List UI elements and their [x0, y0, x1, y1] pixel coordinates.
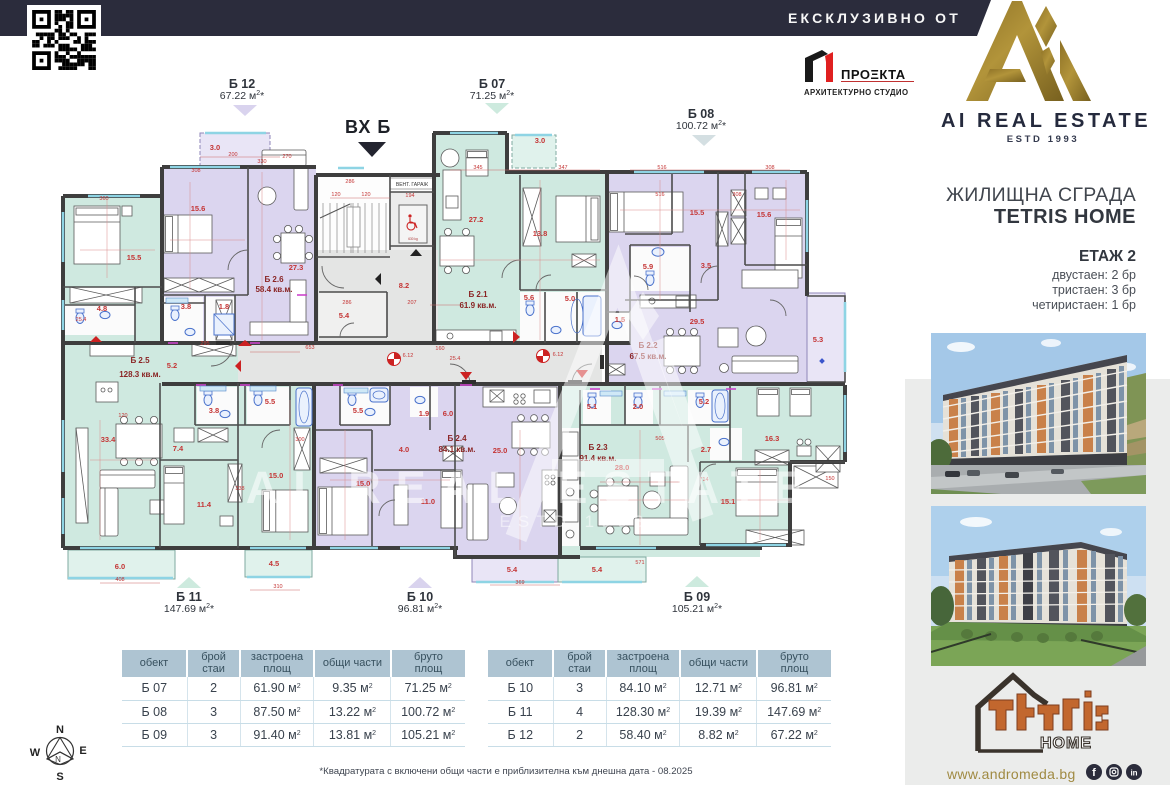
- svg-text:310: 310: [273, 584, 282, 590]
- svg-text:6.0: 6.0: [115, 562, 125, 571]
- svg-text:61.9 кв.м.: 61.9 кв.м.: [459, 301, 496, 310]
- svg-text:330: 330: [257, 159, 266, 165]
- svg-text:150: 150: [825, 476, 834, 482]
- svg-text:3.5: 3.5: [701, 261, 711, 270]
- svg-text:295: 295: [200, 341, 209, 347]
- svg-text:15.6: 15.6: [191, 204, 206, 213]
- svg-text:1.9: 1.9: [419, 409, 429, 418]
- svg-text:ESTD 1993: ESTD 1993: [500, 512, 651, 531]
- svg-text:4.8: 4.8: [97, 304, 107, 313]
- svg-text:5.5: 5.5: [353, 406, 363, 415]
- svg-text:300: 300: [295, 437, 304, 443]
- svg-text:HOME: HOME: [1040, 735, 1092, 752]
- svg-text:in: in: [1130, 769, 1137, 778]
- svg-text:5.4: 5.4: [507, 565, 518, 574]
- svg-text:15.5: 15.5: [690, 208, 705, 217]
- svg-text:84.1 кв.м.: 84.1 кв.м.: [438, 445, 475, 454]
- svg-text:630 kg: 630 kg: [408, 237, 418, 241]
- svg-text:7.4: 7.4: [173, 444, 184, 453]
- svg-text:286: 286: [342, 300, 351, 306]
- svg-text:5.2: 5.2: [699, 397, 709, 406]
- svg-text:270: 270: [282, 154, 291, 160]
- svg-text:120: 120: [361, 192, 370, 198]
- svg-text:308: 308: [191, 168, 200, 174]
- svg-text:408: 408: [115, 577, 124, 583]
- svg-text:286: 286: [345, 179, 354, 185]
- svg-text:120: 120: [118, 413, 127, 419]
- svg-text:5.9: 5.9: [643, 262, 653, 271]
- svg-text:f: f: [1092, 767, 1096, 779]
- svg-text:5.0: 5.0: [565, 294, 575, 303]
- svg-text:2.0: 2.0: [633, 402, 643, 411]
- svg-text:N: N: [56, 724, 64, 736]
- svg-text:ESTD 1993: ESTD 1993: [1007, 134, 1080, 145]
- svg-text:3.8: 3.8: [181, 302, 191, 311]
- svg-text:308: 308: [732, 192, 741, 198]
- svg-text:ПРОΞКТА: ПРОΞКТА: [841, 67, 906, 82]
- svg-text:207: 207: [407, 300, 416, 306]
- svg-text:Б 2.5: Б 2.5: [130, 356, 150, 365]
- svg-text:571: 571: [635, 560, 644, 566]
- svg-text:АРХИТЕКТУРНО СТУДИО: АРХИТЕКТУРНО СТУДИО: [804, 88, 908, 97]
- svg-text:W: W: [30, 747, 41, 759]
- svg-text:25.4: 25.4: [76, 317, 87, 323]
- svg-text:58.4 кв.м.: 58.4 кв.м.: [255, 285, 292, 294]
- svg-text:3.0: 3.0: [535, 136, 545, 145]
- svg-text:N: N: [55, 755, 61, 764]
- svg-text:120: 120: [331, 192, 340, 198]
- svg-text:27.3: 27.3: [289, 263, 304, 272]
- svg-text:3.0: 3.0: [210, 143, 220, 152]
- svg-text:1.8: 1.8: [219, 302, 229, 311]
- svg-text:AI REAL ESTATE: AI REAL ESTATE: [246, 462, 819, 513]
- svg-text:16.3: 16.3: [765, 434, 780, 443]
- svg-text:27.2: 27.2: [469, 215, 484, 224]
- svg-text:653: 653: [305, 345, 314, 351]
- svg-text:8.2: 8.2: [399, 281, 409, 290]
- svg-text:5.4: 5.4: [592, 565, 603, 574]
- svg-text:6.12: 6.12: [553, 352, 564, 358]
- svg-text:ВЕНТ. ГАРАЖ: ВЕНТ. ГАРАЖ: [396, 182, 429, 188]
- svg-text:AI REAL ESTATE: AI REAL ESTATE: [941, 110, 1151, 132]
- svg-text:6.12: 6.12: [403, 353, 414, 359]
- svg-text:25.0: 25.0: [493, 446, 508, 455]
- svg-text:5.3: 5.3: [813, 335, 823, 344]
- svg-text:S: S: [56, 771, 63, 783]
- svg-text:Б 2.1: Б 2.1: [468, 290, 488, 299]
- svg-text:E: E: [79, 745, 86, 757]
- svg-text:5.1: 5.1: [587, 402, 597, 411]
- svg-text:6.0: 6.0: [443, 409, 453, 418]
- svg-text:Б 2.3: Б 2.3: [588, 443, 608, 452]
- svg-text:194: 194: [405, 193, 414, 199]
- svg-text:25.4: 25.4: [450, 356, 461, 362]
- svg-text:4.0: 4.0: [399, 445, 409, 454]
- svg-text:5.5: 5.5: [265, 397, 275, 406]
- svg-text:160: 160: [435, 346, 444, 352]
- svg-text:Б 2.4: Б 2.4: [447, 434, 467, 443]
- svg-text:33.4: 33.4: [101, 435, 116, 444]
- svg-text:5.6: 5.6: [524, 293, 534, 302]
- svg-text:4.5: 4.5: [269, 559, 279, 568]
- svg-text:29.5: 29.5: [690, 317, 705, 326]
- svg-text:Б 2.6: Б 2.6: [264, 275, 284, 284]
- svg-text:3.8: 3.8: [209, 406, 219, 415]
- svg-text:5.4: 5.4: [339, 311, 350, 320]
- svg-text:15.6: 15.6: [757, 210, 772, 219]
- svg-text:2.7: 2.7: [701, 445, 711, 454]
- svg-text:15.5: 15.5: [127, 253, 142, 262]
- svg-text:128.3 кв.м.: 128.3 кв.м.: [119, 370, 161, 379]
- svg-text:338: 338: [235, 486, 244, 492]
- svg-text:11.4: 11.4: [197, 500, 212, 509]
- svg-text:5.2: 5.2: [167, 361, 177, 370]
